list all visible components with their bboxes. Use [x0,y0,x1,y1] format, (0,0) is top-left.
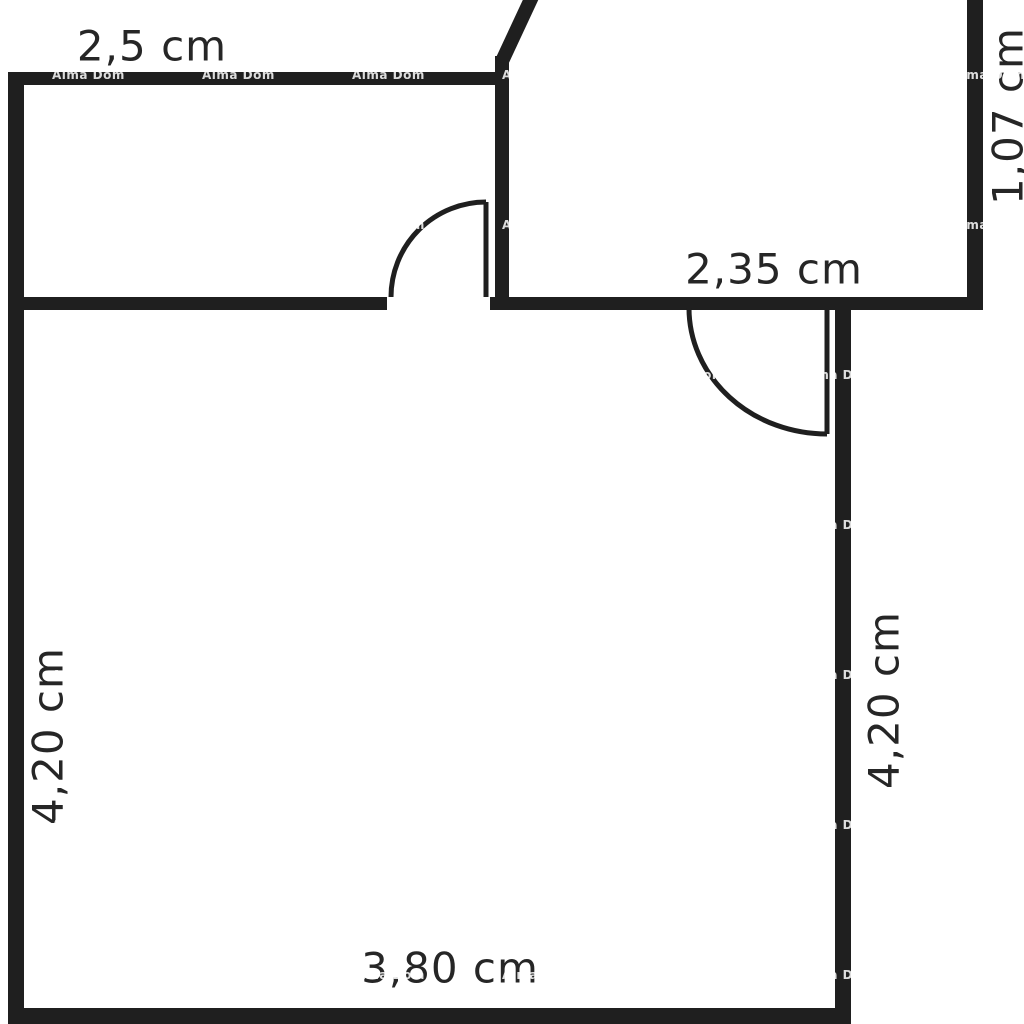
dimension-top-room-width: 2,5 cm [77,22,227,71]
dimension-main-room-height-right: 4,20 cm [860,611,909,789]
door-swings [0,0,1024,1024]
door-swing-arc-right-room [689,308,827,434]
dimension-main-room-height-left: 4,20 cm [24,647,73,825]
door-swing-arc-left-room [391,202,486,297]
dimension-upper-right-room-height: 1,07 cm [984,27,1024,205]
dimension-upper-right-room-width: 2,35 cm [685,245,863,294]
dimension-main-room-width-bottom: 3,80 cm [361,944,539,993]
floorplan-canvas: 2,5 cm 1,07 cm 2,35 cm 4,20 cm 4,20 cm 3… [0,0,1024,1024]
